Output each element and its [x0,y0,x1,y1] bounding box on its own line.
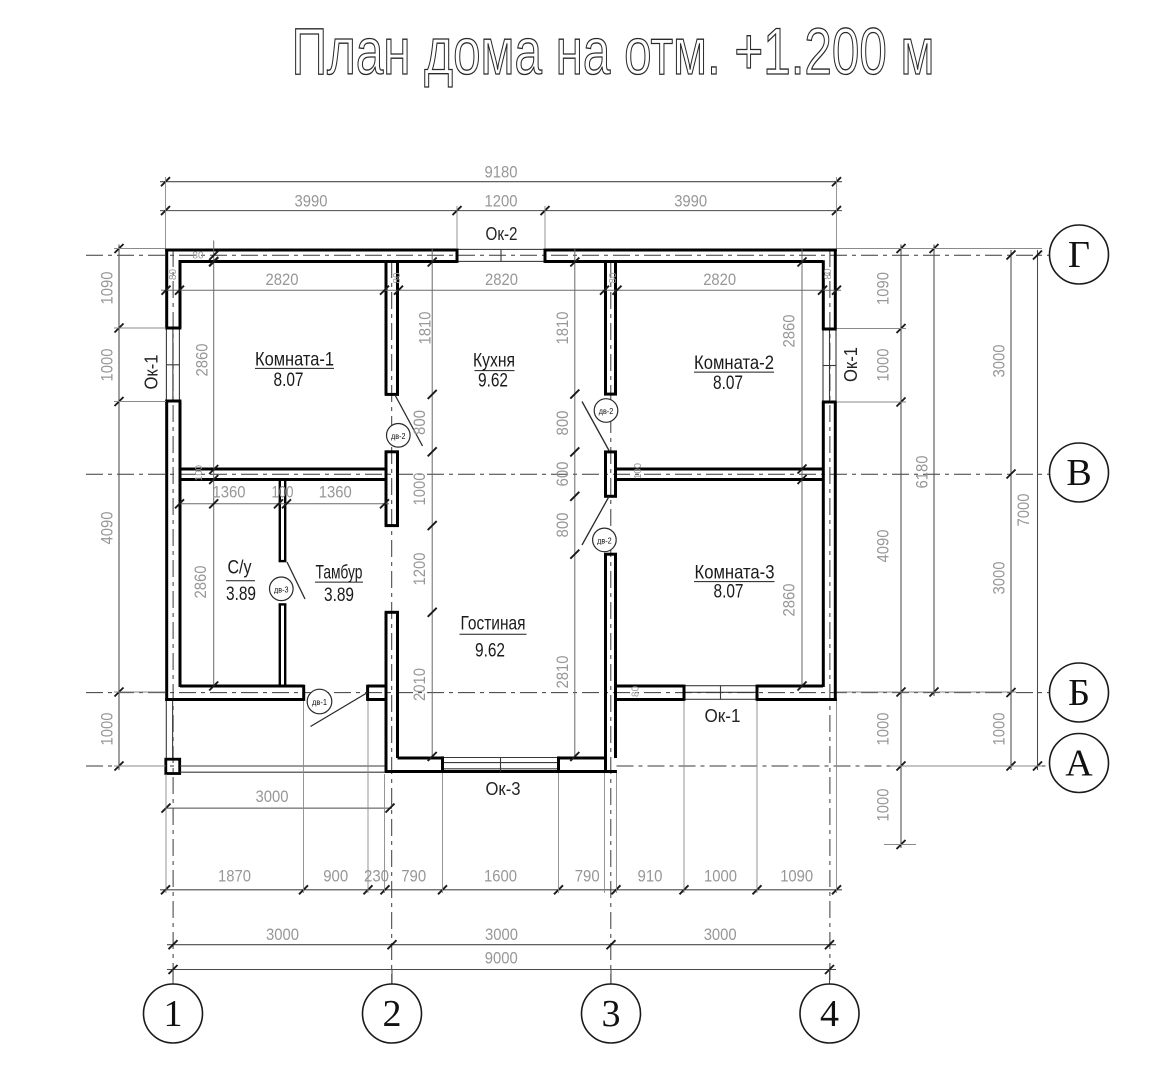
svg-text:6180: 6180 [913,456,932,489]
svg-text:1600: 1600 [484,866,517,885]
svg-text:9.62: 9.62 [475,640,505,662]
svg-text:8.07: 8.07 [274,369,304,391]
svg-text:3000: 3000 [485,925,518,944]
svg-text:1200: 1200 [485,192,518,211]
svg-text:9180: 9180 [485,163,518,182]
svg-text:2820: 2820 [485,270,518,289]
svg-text:3: 3 [602,993,621,1035]
svg-text:80: 80 [167,269,179,280]
svg-text:дв-2: дв-2 [599,407,614,416]
svg-text:2860: 2860 [193,344,212,377]
svg-text:1000: 1000 [989,713,1008,746]
svg-text:790: 790 [575,866,600,885]
svg-text:3000: 3000 [704,925,737,944]
svg-text:1000: 1000 [874,349,893,382]
svg-text:2860: 2860 [780,315,799,348]
svg-text:Ок-1: Ок-1 [141,355,162,390]
svg-text:3000: 3000 [989,562,1008,595]
svg-text:900: 900 [323,866,348,885]
svg-text:1: 1 [164,993,183,1035]
svg-text:Г: Г [1068,234,1090,276]
svg-text:Комната-2: Комната-2 [694,352,774,374]
svg-text:В: В [1066,452,1091,494]
svg-text:80: 80 [630,686,642,697]
svg-text:1870: 1870 [218,866,251,885]
svg-text:3990: 3990 [674,192,707,211]
svg-text:Б: Б [1068,672,1090,714]
svg-text:3.89: 3.89 [226,583,256,605]
svg-text:1000: 1000 [874,789,893,822]
svg-text:80: 80 [822,268,834,279]
svg-text:9.62: 9.62 [478,370,508,392]
svg-text:дв-2: дв-2 [391,432,406,441]
svg-text:Ок-3: Ок-3 [486,778,521,799]
svg-text:3000: 3000 [256,787,289,806]
svg-text:2860: 2860 [191,566,210,599]
svg-text:1000: 1000 [98,349,117,382]
svg-text:дв-1: дв-1 [312,698,327,707]
svg-text:800: 800 [410,410,429,435]
svg-text:600: 600 [553,462,572,487]
svg-text:дв-3: дв-3 [274,585,289,594]
svg-text:1810: 1810 [553,312,572,345]
svg-text:Гостиная: Гостиная [461,613,526,635]
svg-text:А: А [1065,743,1093,785]
svg-text:1000: 1000 [98,713,117,746]
svg-text:100: 100 [193,465,205,481]
svg-text:80: 80 [193,250,204,262]
svg-text:2860: 2860 [780,584,799,617]
svg-text:8.07: 8.07 [714,581,744,603]
svg-text:800: 800 [553,411,572,436]
svg-text:1000: 1000 [704,866,737,885]
svg-text:4090: 4090 [98,512,117,545]
svg-text:2010: 2010 [410,668,429,701]
svg-text:3000: 3000 [266,925,299,944]
svg-text:2810: 2810 [553,656,572,689]
svg-text:4090: 4090 [874,530,893,563]
svg-text:2: 2 [383,993,402,1035]
svg-text:1360: 1360 [213,483,246,502]
svg-text:1000: 1000 [874,713,893,746]
svg-text:дв-2: дв-2 [597,536,612,545]
svg-text:3990: 3990 [295,192,328,211]
svg-text:Кухня: Кухня [473,350,515,372]
svg-text:Ок-1: Ок-1 [705,705,741,726]
svg-text:План дома на отм. +1.200 м: План дома на отм. +1.200 м [292,14,935,88]
svg-text:800: 800 [553,513,572,538]
svg-text:4: 4 [820,993,839,1035]
svg-text:1360: 1360 [319,483,352,502]
svg-text:1200: 1200 [410,553,429,586]
svg-text:2820: 2820 [703,270,736,289]
svg-text:3000: 3000 [989,345,1008,378]
svg-text:1090: 1090 [874,272,893,305]
svg-text:1090: 1090 [98,272,117,305]
svg-text:100: 100 [632,463,644,479]
svg-text:8.07: 8.07 [713,372,743,394]
svg-text:Ок-1: Ок-1 [840,347,861,382]
svg-text:80: 80 [391,272,403,283]
svg-text:Ок-2: Ок-2 [486,223,518,244]
svg-text:9000: 9000 [485,949,518,968]
svg-text:1810: 1810 [416,312,435,345]
svg-text:790: 790 [401,866,426,885]
svg-text:2820: 2820 [266,270,299,289]
svg-text:1000: 1000 [410,473,429,506]
svg-text:С/у: С/у [228,557,252,579]
svg-text:7000: 7000 [1014,494,1033,527]
svg-text:100: 100 [272,483,294,502]
svg-text:1090: 1090 [780,866,813,885]
svg-text:Тамбур: Тамбур [316,562,363,584]
svg-text:Комната-1: Комната-1 [255,348,334,370]
svg-text:80: 80 [607,272,619,283]
svg-text:3.89: 3.89 [324,584,354,606]
svg-text:910: 910 [638,866,663,885]
